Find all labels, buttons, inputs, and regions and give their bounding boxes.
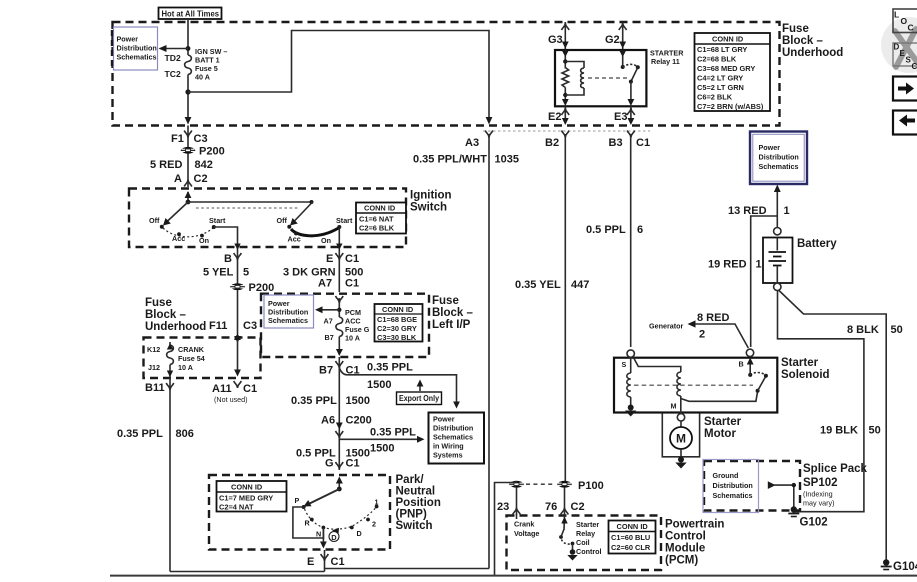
svg-text:0.35 PPL/WHT: 0.35 PPL/WHT [413,154,487,166]
svg-text:On: On [199,236,209,245]
svg-text:50: 50 [891,324,903,336]
svg-text:Switch: Switch [396,520,433,532]
svg-text:C1=68 BGE: C1=68 BGE [377,315,417,324]
svg-text:2: 2 [372,520,376,529]
svg-text:Control: Control [665,531,706,543]
svg-text:CONN ID: CONN ID [364,204,396,213]
svg-text:B7: B7 [325,333,334,342]
svg-text:Acc: Acc [172,234,185,243]
svg-text:A6: A6 [321,415,335,427]
svg-text:C4=2 LT GRY: C4=2 LT GRY [697,74,743,83]
svg-text:C2=30 GRY: C2=30 GRY [377,324,417,333]
svg-text:Export Only: Export Only [399,394,440,403]
svg-text:Acc: Acc [288,235,301,244]
svg-text:Neutral: Neutral [396,486,436,498]
svg-text:CONN ID: CONN ID [712,35,744,44]
svg-text:Position: Position [396,497,441,509]
svg-text:G: G [325,458,334,470]
svg-text:Starter: Starter [704,416,742,428]
svg-text:1500: 1500 [367,379,391,391]
svg-text:R: R [305,519,311,528]
svg-text:G3: G3 [548,34,563,46]
svg-text:Off: Off [149,216,160,225]
svg-text:C1=6 NAT: C1=6 NAT [359,215,394,224]
svg-text:Voltage: Voltage [514,529,539,538]
svg-text:50: 50 [869,425,881,437]
svg-text:Distribution: Distribution [713,481,753,490]
svg-text:A7: A7 [318,278,332,290]
svg-text:A3: A3 [465,137,479,149]
svg-text:C1: C1 [346,458,360,470]
svg-text:Schematics: Schematics [759,162,799,171]
svg-text:C3: C3 [194,133,208,145]
svg-text:Hot at All Times: Hot at All Times [162,8,220,18]
svg-text:6: 6 [637,224,643,236]
svg-text:P200: P200 [249,282,275,294]
svg-text:Block –: Block – [432,307,474,319]
svg-text:5 YEL: 5 YEL [203,267,234,279]
svg-text:E: E [326,253,333,265]
svg-text:Start: Start [336,216,353,225]
svg-text:0.5 PPL: 0.5 PPL [586,224,626,236]
svg-text:Schematics: Schematics [117,53,157,62]
svg-text:8 BLK: 8 BLK [847,324,879,336]
svg-text:8 RED: 8 RED [697,312,729,324]
svg-text:Distribution: Distribution [117,44,157,53]
svg-text:40 A: 40 A [195,73,210,82]
svg-text:Block –: Block – [782,35,824,47]
svg-text:CONN ID: CONN ID [617,522,649,531]
svg-text:C3=30 BLK: C3=30 BLK [377,333,417,342]
svg-text:Starter: Starter [576,520,599,529]
svg-text:Distribution: Distribution [433,424,473,433]
svg-text:Starter: Starter [781,357,819,369]
svg-text:23: 23 [497,501,509,513]
svg-text:1035: 1035 [495,154,519,166]
svg-text:S: S [622,360,627,369]
svg-text:C1: C1 [636,137,650,149]
svg-text:C2=68 BLK: C2=68 BLK [697,55,737,64]
svg-text:in Wiring: in Wiring [433,442,464,451]
svg-text:0.35 PPL: 0.35 PPL [291,395,337,407]
svg-text:5 RED: 5 RED [150,159,182,171]
svg-text:C2=60 CLR: C2=60 CLR [611,543,651,552]
svg-text:C5=2 LT GRN: C5=2 LT GRN [697,83,744,92]
svg-text:19 RED: 19 RED [708,259,747,271]
svg-text:C1: C1 [331,556,345,568]
svg-text:Switch: Switch [410,202,447,214]
svg-text:C1: C1 [243,383,257,395]
svg-text:CONN ID: CONN ID [382,305,414,314]
svg-text:1500: 1500 [370,443,394,455]
svg-text:5: 5 [243,267,249,279]
svg-text:B: B [224,253,232,265]
svg-text:19 BLK: 19 BLK [820,425,858,437]
svg-text:447: 447 [571,279,589,291]
svg-text:10 A: 10 A [178,363,193,372]
svg-text:M: M [676,432,686,446]
svg-text:10 A: 10 A [345,334,360,343]
svg-text:Power: Power [759,143,781,152]
svg-text:C200: C200 [346,415,372,427]
svg-text:A: A [174,173,182,185]
svg-text:0.35 PPL: 0.35 PPL [367,362,413,374]
svg-text:Underhood: Underhood [145,321,206,333]
svg-text:0.35 PPL: 0.35 PPL [117,428,163,440]
svg-text:C1=60 BLU: C1=60 BLU [611,533,650,542]
svg-text:G2: G2 [605,34,620,46]
svg-text:F1: F1 [171,133,184,145]
svg-text:E3: E3 [614,111,627,123]
svg-text:Relay 11: Relay 11 [651,57,680,66]
svg-text:Solenoid: Solenoid [781,369,830,381]
svg-text:On: On [321,236,331,245]
svg-text:A11: A11 [212,383,232,395]
svg-text:842: 842 [195,159,213,171]
svg-text:Module: Module [665,543,705,555]
svg-text:1500: 1500 [346,395,370,407]
svg-text:Ground: Ground [713,471,739,480]
svg-text:1: 1 [375,498,379,507]
svg-text:TD2: TD2 [165,53,181,63]
svg-text:P200: P200 [199,146,225,158]
svg-text:B: B [739,360,744,369]
svg-text:Distribution: Distribution [759,153,799,162]
svg-text:B3: B3 [609,137,623,149]
svg-text:Systems: Systems [433,451,463,460]
svg-text:Left I/P: Left I/P [432,319,471,331]
svg-text:K12: K12 [147,345,160,354]
svg-text:Block –: Block – [145,309,187,321]
svg-text:2: 2 [699,329,705,341]
svg-text:Splice Pack: Splice Pack [803,463,868,475]
svg-text:G102: G102 [800,517,828,529]
svg-text:Fuse: Fuse [145,297,172,309]
svg-text:C6=2 BLK: C6=2 BLK [697,93,733,102]
svg-text:Schematics: Schematics [433,433,473,442]
svg-text:C1=7 MED GRY: C1=7 MED GRY [219,494,273,503]
svg-text:G104: G104 [893,561,917,573]
svg-text:806: 806 [176,428,194,440]
svg-text:Powertrain: Powertrain [665,519,724,531]
svg-text:Power: Power [117,35,139,44]
svg-text:C: C [908,23,914,33]
svg-text:Ignition: Ignition [410,190,452,202]
svg-text:Battery: Battery [797,238,837,250]
svg-text:1: 1 [784,205,790,217]
svg-text:Power: Power [433,415,455,424]
svg-text:Coil: Coil [576,538,590,547]
svg-text:0.35 YEL: 0.35 YEL [515,279,561,291]
svg-text:C2: C2 [571,501,585,513]
svg-text:(PCM): (PCM) [665,555,698,567]
svg-text:P100: P100 [578,480,604,492]
svg-text:Off: Off [277,216,288,225]
svg-text:O: O [901,16,908,26]
svg-text:D: D [331,533,337,542]
svg-text:C7=2 BRN (w/ABS): C7=2 BRN (w/ABS) [697,102,764,111]
svg-text:Schematics: Schematics [268,316,308,325]
svg-text:Relay: Relay [576,529,595,538]
svg-text:C3=68 MED GRY: C3=68 MED GRY [697,64,755,73]
svg-text:C: C [912,62,917,71]
svg-text:(Not used): (Not used) [214,395,248,404]
svg-text:Fuse: Fuse [432,295,459,307]
svg-text:E2: E2 [548,111,561,123]
svg-text:F11: F11 [209,320,227,332]
svg-text:C1=68 LT GRY: C1=68 LT GRY [697,45,747,54]
svg-text:B11: B11 [145,382,165,394]
svg-text:Generator: Generator [649,322,684,331]
svg-text:Fuse 54: Fuse 54 [178,354,205,363]
svg-text:76: 76 [545,501,557,513]
svg-text:CRANK: CRANK [178,345,205,354]
svg-text:1: 1 [756,259,762,271]
svg-text:Underhood: Underhood [782,47,843,59]
svg-text:N: N [316,530,321,539]
svg-text:Start: Start [209,216,226,225]
svg-text:C2: C2 [194,173,208,185]
svg-text:SP102: SP102 [803,477,838,489]
svg-text:B7: B7 [319,365,333,377]
svg-text:J12: J12 [148,363,160,372]
svg-text:Park/: Park/ [396,474,425,486]
svg-text:Motor: Motor [704,428,736,440]
svg-text:(Indexing: (Indexing [803,490,833,499]
svg-text:P: P [295,496,300,505]
svg-text:D: D [357,529,362,538]
svg-text:Fuse: Fuse [782,23,809,35]
svg-text:A7: A7 [324,317,333,326]
svg-text:C2=4 NAT: C2=4 NAT [219,503,254,512]
svg-text:Crank: Crank [514,520,534,529]
svg-text:CONN ID: CONN ID [231,483,263,492]
svg-text:0.35 PPL: 0.35 PPL [370,427,416,439]
svg-text:C2=6 BLK: C2=6 BLK [359,224,395,233]
svg-text:C3: C3 [243,320,257,332]
svg-text:C1: C1 [345,278,359,290]
svg-text:Schematics: Schematics [713,491,753,500]
svg-text:Control: Control [576,547,602,556]
svg-text:E: E [307,556,314,568]
svg-text:B2: B2 [545,137,559,149]
svg-text:L: L [894,10,899,20]
svg-text:C1: C1 [345,253,359,265]
svg-text:may vary): may vary) [803,499,835,508]
svg-text:(PNP): (PNP) [396,509,427,521]
svg-text:M: M [671,402,677,411]
svg-text:TC2: TC2 [165,69,181,79]
